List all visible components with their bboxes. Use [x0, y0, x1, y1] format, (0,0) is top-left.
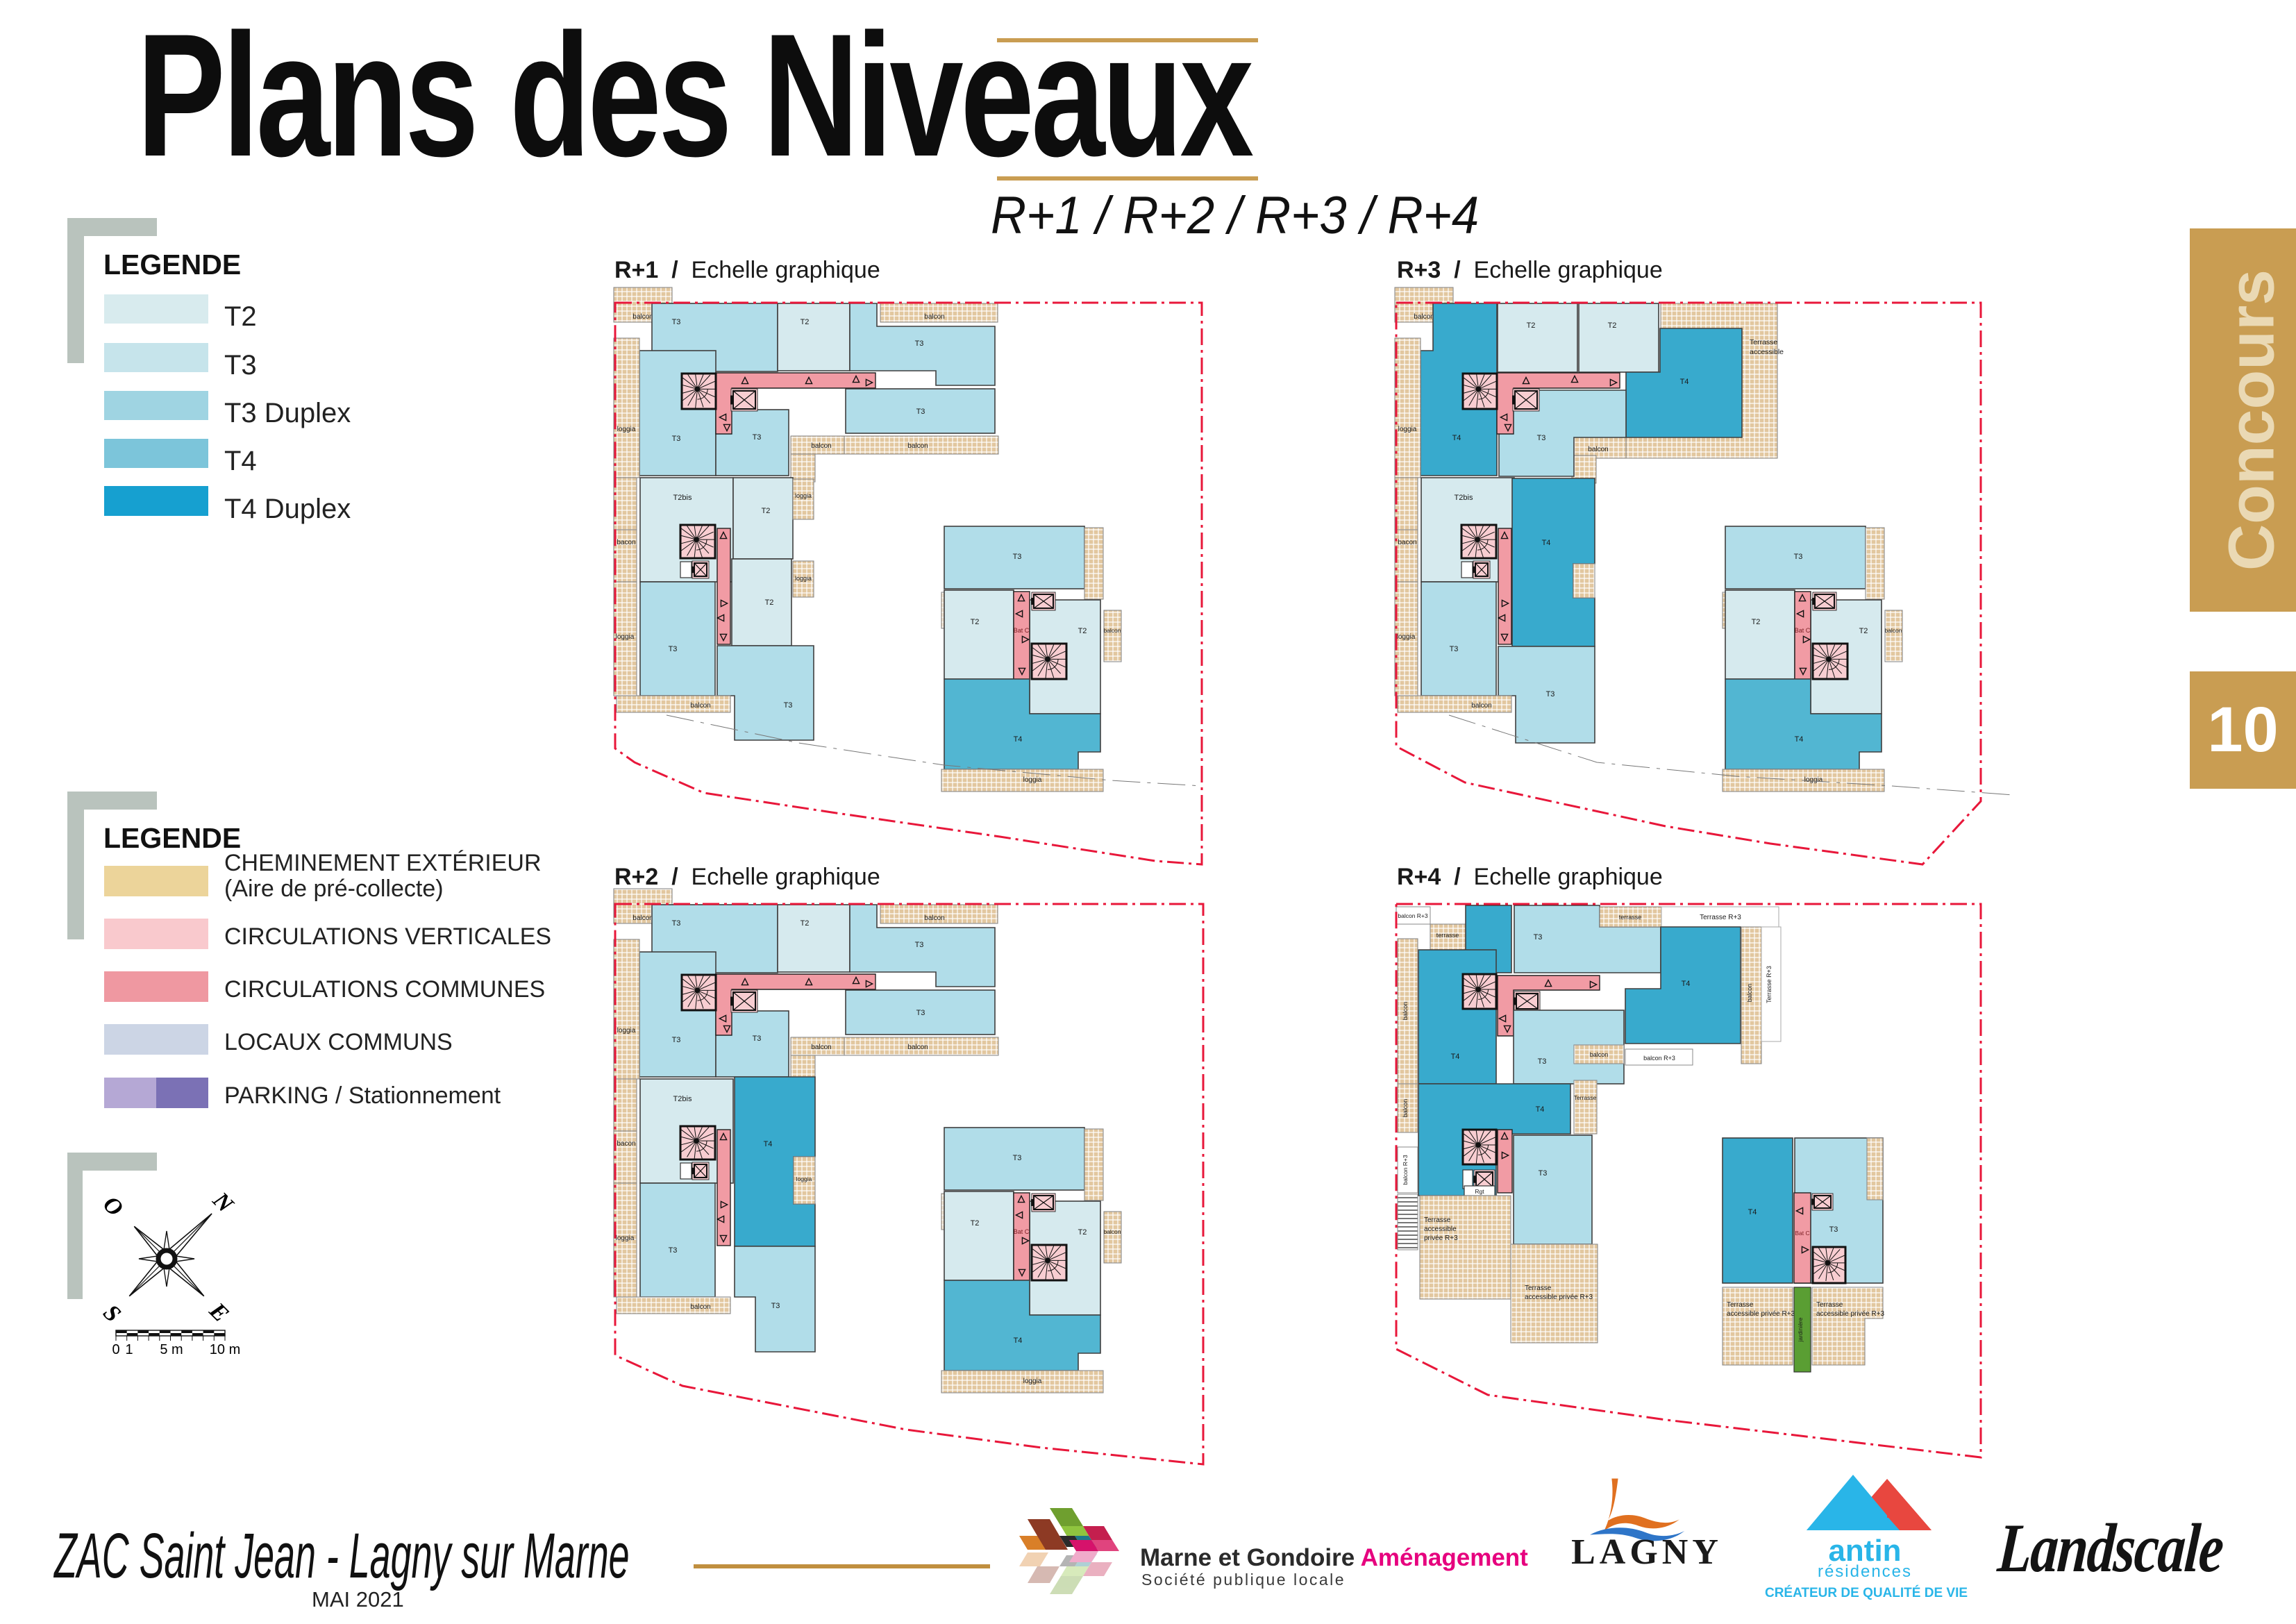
svg-text:balcon: balcon: [1414, 313, 1434, 321]
svg-text:loggia: loggia: [617, 1027, 636, 1035]
svg-text:T4: T4: [1451, 1053, 1460, 1061]
svg-text:T3: T3: [916, 408, 925, 416]
svg-text:T3: T3: [672, 1036, 681, 1044]
svg-text:T3: T3: [1794, 553, 1803, 561]
svg-text:accessible privée R+3: accessible privée R+3: [1816, 1310, 1885, 1318]
svg-text:T2: T2: [1078, 627, 1087, 635]
svg-text:R+3 / Echelle graphique: R+3 / Echelle graphique: [1397, 257, 1663, 283]
svg-text:T3: T3: [1546, 690, 1555, 698]
svg-text:terrasse: terrasse: [1436, 932, 1459, 939]
svg-text:bacon: bacon: [617, 539, 635, 546]
svg-text:T2bis: T2bis: [1455, 494, 1473, 502]
svg-text:T3: T3: [915, 340, 924, 348]
svg-text:R+4 / Echelle graphique: R+4 / Echelle graphique: [1397, 864, 1663, 890]
svg-text:Bat C: Bat C: [1014, 627, 1030, 634]
svg-text:T3: T3: [1534, 933, 1543, 941]
svg-text:balcon: balcon: [1402, 1099, 1409, 1118]
svg-text:terrasse: terrasse: [1619, 914, 1642, 921]
svg-text:T3: T3: [1013, 553, 1022, 561]
svg-text:10 m: 10 m: [210, 1342, 240, 1357]
svg-text:balcon: balcon: [632, 313, 653, 321]
svg-text:loggia: loggia: [796, 1175, 812, 1182]
svg-text:T3: T3: [915, 941, 924, 949]
svg-text:balcon: balcon: [907, 1044, 928, 1051]
svg-text:balcon: balcon: [690, 1303, 710, 1311]
svg-text:balcon: balcon: [907, 442, 928, 450]
svg-text:balcon R+3: balcon R+3: [1643, 1055, 1675, 1062]
svg-text:loggia: loggia: [616, 1234, 635, 1242]
svg-text:balcon: balcon: [1471, 702, 1491, 710]
svg-text:Bat C: Bat C: [1795, 1230, 1809, 1237]
svg-text:T2bis: T2bis: [673, 1095, 692, 1103]
svg-text:balcon: balcon: [1884, 627, 1902, 634]
svg-text:T3: T3: [672, 318, 681, 326]
svg-text:T2: T2: [801, 919, 810, 928]
svg-text:bacon: bacon: [617, 1140, 635, 1148]
svg-text:T4: T4: [1014, 735, 1023, 744]
svg-text:balcon: balcon: [632, 914, 653, 922]
svg-text:N: N: [207, 1187, 238, 1219]
svg-text:balcon: balcon: [690, 702, 710, 710]
svg-text:T3: T3: [669, 645, 678, 653]
svg-text:Terrasse: Terrasse: [1525, 1284, 1552, 1292]
svg-text:loggia: loggia: [1397, 633, 1416, 641]
svg-text:T2: T2: [762, 507, 771, 515]
svg-text:accessible privée R+3: accessible privée R+3: [1727, 1310, 1795, 1318]
svg-text:T2: T2: [1527, 321, 1536, 330]
svg-text:Terrasse: Terrasse: [1727, 1301, 1754, 1309]
svg-text:T3: T3: [1538, 1057, 1547, 1066]
svg-text:T4: T4: [1014, 1337, 1023, 1345]
svg-text:balcon: balcon: [811, 1044, 831, 1051]
svg-text:5 m: 5 m: [160, 1342, 183, 1357]
svg-text:balcon: balcon: [1588, 446, 1608, 453]
svg-text:T2: T2: [1608, 321, 1617, 330]
svg-text:balcon: balcon: [1590, 1051, 1609, 1058]
svg-text:loggia: loggia: [795, 492, 812, 499]
svg-text:accessible: accessible: [1424, 1225, 1457, 1233]
svg-text:loggia: loggia: [1023, 1378, 1042, 1385]
svg-text:balcon: balcon: [924, 313, 944, 321]
svg-text:T3: T3: [1537, 434, 1546, 442]
svg-text:T3: T3: [1539, 1169, 1548, 1178]
svg-text:loggia: loggia: [1398, 426, 1417, 433]
svg-text:Terrasse: Terrasse: [1750, 338, 1777, 346]
svg-text:T2: T2: [1752, 618, 1761, 626]
svg-text:résidences: résidences: [1818, 1562, 1912, 1581]
svg-text:accessible privée R+3: accessible privée R+3: [1525, 1294, 1593, 1301]
svg-text:Terrasse R+3: Terrasse R+3: [1700, 914, 1741, 921]
svg-text:Bat C: Bat C: [1014, 1228, 1030, 1235]
svg-text:1: 1: [125, 1342, 133, 1357]
svg-text:0: 0: [112, 1342, 119, 1357]
svg-text:balcon R+3: balcon R+3: [1402, 1155, 1409, 1185]
svg-text:T3: T3: [784, 701, 793, 710]
svg-text:loggia: loggia: [617, 426, 636, 433]
svg-text:T4: T4: [1452, 434, 1461, 442]
svg-text:bacon: bacon: [1398, 539, 1416, 546]
svg-text:T3: T3: [753, 433, 762, 442]
svg-text:R+1 / Echelle graphique: R+1 / Echelle graphique: [614, 257, 880, 283]
svg-text:T3: T3: [916, 1009, 925, 1017]
svg-text:O: O: [98, 1191, 128, 1222]
svg-text:privée R+3: privée R+3: [1424, 1234, 1458, 1242]
svg-text:T4: T4: [764, 1140, 773, 1148]
svg-text:T4: T4: [1748, 1208, 1757, 1216]
svg-text:T4: T4: [1542, 539, 1551, 547]
svg-text:balcon: balcon: [924, 914, 944, 922]
svg-text:T2: T2: [1859, 627, 1868, 635]
svg-text:T2: T2: [765, 598, 774, 607]
svg-text:Rgt: Rgt: [1475, 1188, 1484, 1195]
svg-text:T2: T2: [1078, 1228, 1087, 1237]
svg-text:Terrasse: Terrasse: [1424, 1216, 1451, 1224]
svg-text:T2: T2: [971, 618, 980, 626]
svg-text:T2bis: T2bis: [673, 494, 692, 502]
svg-text:T3: T3: [753, 1035, 762, 1043]
svg-text:T3: T3: [771, 1302, 780, 1310]
svg-text:T4: T4: [1795, 735, 1804, 744]
svg-text:T2: T2: [971, 1219, 980, 1228]
svg-text:CRÉATEUR DE QUALITÉ DE VIE: CRÉATEUR DE QUALITÉ DE VIE: [1765, 1585, 1968, 1600]
svg-text:T4: T4: [1680, 378, 1689, 386]
svg-text:balcon R+3: balcon R+3: [1398, 912, 1428, 919]
svg-text:balcon: balcon: [811, 442, 831, 450]
svg-text:T3: T3: [1450, 645, 1459, 653]
svg-text:Bat C: Bat C: [1795, 627, 1811, 634]
svg-text:T3: T3: [1829, 1225, 1838, 1234]
svg-text:Terrasse R+3: Terrasse R+3: [1766, 966, 1773, 1003]
svg-text:T2: T2: [801, 318, 810, 326]
svg-text:balcon: balcon: [1746, 984, 1753, 1003]
svg-text:LAGNY: LAGNY: [1571, 1532, 1723, 1572]
svg-text:T3: T3: [669, 1246, 678, 1255]
svg-text:T4: T4: [1682, 980, 1691, 988]
svg-text:balcon: balcon: [1103, 1228, 1121, 1235]
svg-text:R+2 / Echelle graphique: R+2 / Echelle graphique: [614, 864, 880, 890]
svg-text:loggia: loggia: [795, 575, 812, 582]
svg-text:balcon: balcon: [1103, 627, 1121, 634]
svg-text:loggia: loggia: [1804, 776, 1823, 784]
svg-text:Terrasse: Terrasse: [1816, 1301, 1843, 1309]
svg-text:balcon: balcon: [1402, 1002, 1409, 1021]
svg-text:T4: T4: [1536, 1105, 1545, 1114]
svg-text:Terrasse: Terrasse: [1574, 1094, 1597, 1101]
svg-text:jardinière: jardinière: [1797, 1317, 1804, 1342]
svg-text:loggia: loggia: [616, 633, 635, 641]
svg-text:accessible: accessible: [1750, 348, 1784, 356]
svg-text:loggia: loggia: [1023, 776, 1042, 784]
svg-text:T3: T3: [672, 919, 681, 928]
svg-text:T3: T3: [1013, 1154, 1022, 1162]
svg-text:T3: T3: [672, 435, 681, 443]
